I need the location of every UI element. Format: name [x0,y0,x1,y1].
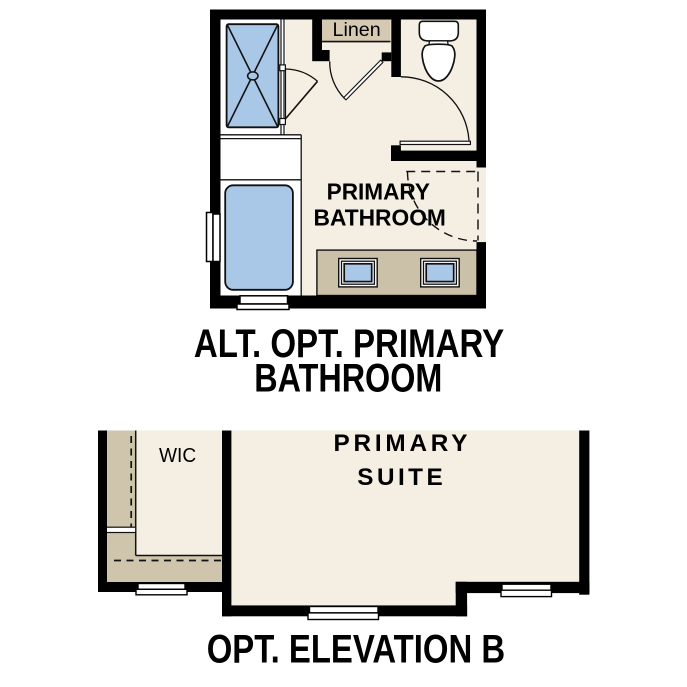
svg-text:WIC: WIC [159,445,196,467]
svg-text:PRIMARY: PRIMARY [327,178,431,204]
svg-text:Linen: Linen [333,20,381,41]
svg-text:BATHROOM: BATHROOM [314,205,446,231]
svg-text:OPT. ELEVATION B: OPT. ELEVATION B [207,628,505,672]
svg-text:BATHROOM: BATHROOM [254,357,442,401]
svg-text:SUITE: SUITE [357,464,442,491]
svg-text:PRIMARY: PRIMARY [334,430,468,457]
